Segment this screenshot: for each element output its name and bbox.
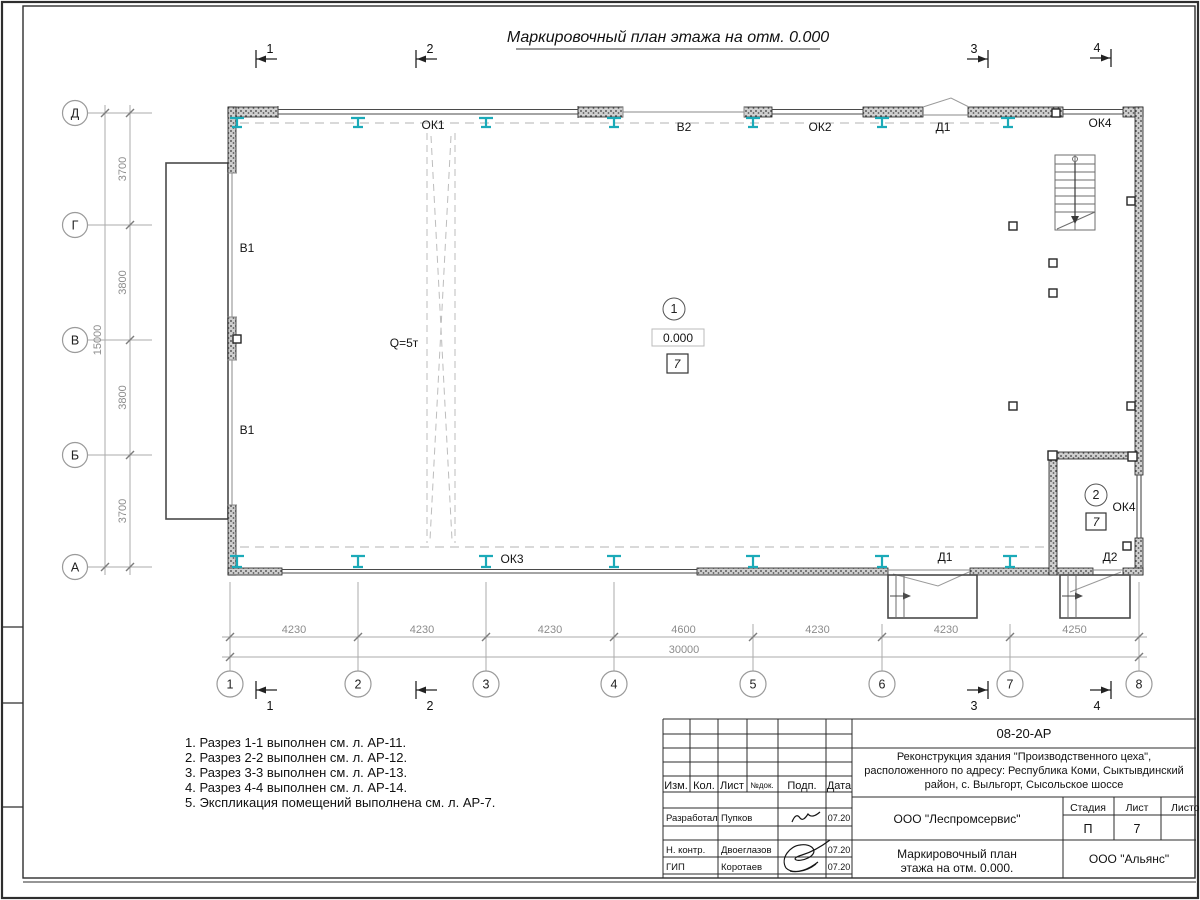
project-line-1: Реконструкция здания "Производственного … — [897, 751, 1151, 763]
col-kol: Кол. — [693, 780, 715, 792]
gate-label-v2: В2 — [677, 120, 692, 134]
note-line: 3. Разрез 3-3 выполнен см. л. АР-13. — [185, 765, 407, 780]
dim-value: 3800 — [117, 385, 129, 409]
project-line-2: расположенного по адресу: Республика Ком… — [864, 765, 1184, 777]
window-label-ok4-room: ОК4 — [1113, 500, 1136, 514]
section-label: 4 — [1094, 41, 1101, 55]
steel-columns — [230, 118, 1017, 567]
dim-value: 4230 — [410, 624, 434, 636]
steel-column-icon — [479, 556, 493, 567]
steel-column-icon — [1003, 556, 1017, 567]
pilaster-marker — [233, 335, 241, 343]
section-mark-2-top: 2 — [416, 42, 437, 68]
note-line: 4. Разрез 4-4 выполнен см. л. АР-14. — [185, 780, 407, 795]
col-ndoc: №док. — [750, 781, 773, 790]
room-2-marker: 2 ОК4 7 — [1085, 484, 1136, 530]
note-line: 5. Экспликация помещений выполнена см. л… — [185, 795, 495, 810]
svg-text:7: 7 — [1007, 678, 1014, 692]
staircase — [1055, 155, 1095, 230]
top-wall — [228, 98, 1143, 118]
crane-area: Q=5т — [240, 123, 1045, 547]
svg-text:3: 3 — [483, 678, 490, 692]
door-label-d2: Д2 — [1103, 550, 1118, 564]
section-label: 1 — [267, 42, 274, 56]
drawing-sheet: Маркировочный план этажа на отм. 0.000 1… — [0, 0, 1200, 900]
axis-circle-g: Г — [63, 213, 88, 238]
axis-circle-2: 2 — [345, 671, 371, 697]
porch-arrow-icon — [903, 593, 911, 600]
dim-total: 30000 — [669, 644, 700, 656]
column-marker — [1127, 197, 1135, 205]
signature-icon — [792, 812, 820, 822]
column-marker — [1123, 542, 1131, 550]
column-marker — [1049, 289, 1057, 297]
column-marker — [1009, 222, 1017, 230]
dim-value: 4230 — [934, 624, 958, 636]
steel-column-icon — [607, 556, 621, 567]
dim-value: 4230 — [282, 624, 306, 636]
dim-value: 4600 — [671, 624, 695, 636]
name-gip: Коротаев — [721, 862, 762, 873]
steel-column-icon — [1001, 118, 1015, 127]
section-mark-2-bottom: 2 — [416, 681, 437, 713]
col-izm: Изм. — [664, 780, 688, 792]
project-line-3: район, с. Выльгорт, Сысольское шоссе — [925, 779, 1124, 791]
steel-column-icon — [746, 556, 760, 567]
axis-circle-d: Д — [63, 101, 88, 126]
svg-text:Г: Г — [72, 219, 79, 233]
section-marks-bottom: 1 2 3 4 — [256, 681, 1111, 713]
gate-label-v1-upper: В1 — [240, 241, 255, 255]
sheet-label: Лист — [1126, 802, 1149, 814]
section-mark-3-bottom: 3 — [967, 681, 988, 713]
col-list: Лист — [720, 780, 744, 792]
name-ncontrol: Двоеглазов — [721, 845, 772, 856]
col-data: Дата — [827, 780, 852, 792]
section-mark-1-bottom: 1 — [256, 681, 277, 713]
axis-circle-3: 3 — [473, 671, 499, 697]
signature-icon — [784, 840, 830, 872]
entrance-porch-2 — [1060, 575, 1130, 618]
role-gip: ГИП — [666, 862, 685, 873]
column-marker — [1128, 452, 1137, 461]
sheet-frame — [2, 2, 1198, 898]
section-label: 3 — [971, 42, 978, 56]
svg-text:1: 1 — [227, 678, 234, 692]
dim-value: 3700 — [117, 499, 129, 523]
axis-circle-v: В — [63, 328, 88, 353]
sheet-number: 7 — [1134, 822, 1141, 836]
crane-capacity-label: Q=5т — [390, 336, 419, 350]
window-label-ok4-top: ОК4 — [1089, 116, 1112, 130]
stage-value: П — [1084, 822, 1093, 836]
room-1-marker: 1 0.000 7 — [652, 298, 704, 373]
window-label-ok2: ОК2 — [809, 120, 832, 134]
axis-circles-left: Д Г В Б А — [63, 101, 88, 580]
dim-value: 3800 — [117, 270, 129, 294]
door-label-d1-bottom: Д1 — [938, 550, 953, 564]
dim-value: 3700 — [117, 157, 129, 181]
window-label-ok1: ОК1 — [422, 118, 445, 132]
date-developer: 07.20 — [828, 813, 851, 823]
doc-number: 08-20-АР — [997, 726, 1052, 741]
axis-circle-4: 4 — [601, 671, 627, 697]
column-marker — [1127, 402, 1135, 410]
section-label: 1 — [267, 699, 274, 713]
left-wall — [227, 107, 241, 575]
dim-value: 4230 — [538, 624, 562, 636]
window-label-ok3: ОК3 — [501, 552, 524, 566]
right-wall — [1135, 107, 1143, 575]
note-line: 1. Разрез 1-1 выполнен см. л. АР-11. — [185, 735, 406, 750]
role-ncontrol: Н. контр. — [666, 845, 705, 856]
bottom-wall — [228, 568, 1143, 592]
section-label: 2 — [427, 699, 434, 713]
svg-text:5: 5 — [750, 678, 757, 692]
role-developer: Разработал — [666, 813, 718, 824]
elevation-value: 0.000 — [663, 331, 693, 345]
col-podp: Подп. — [787, 780, 816, 792]
axis-circle-5: 5 — [740, 671, 766, 697]
date-ncontrol: 07.20 — [828, 845, 851, 855]
section-label: 4 — [1094, 699, 1101, 713]
column-marker — [1009, 402, 1017, 410]
note-line: 2. Разрез 2-2 выполнен см. л. АР-12. — [185, 750, 407, 765]
dim-value: 4230 — [805, 624, 829, 636]
notes-list: 1. Разрез 1-1 выполнен см. л. АР-11. 2. … — [185, 735, 495, 810]
axis-circle-1: 1 — [217, 671, 243, 697]
room-number: 1 — [671, 302, 678, 316]
svg-text:6: 6 — [879, 678, 886, 692]
steel-column-icon — [875, 556, 889, 567]
plan-drawing-svg: Маркировочный план этажа на отм. 0.000 1… — [0, 0, 1200, 900]
svg-text:В: В — [71, 334, 79, 348]
section-label: 2 — [427, 42, 434, 56]
column-marker — [1052, 109, 1060, 117]
org-name: ООО "Леспромсервис" — [894, 812, 1021, 826]
column-marker — [1049, 259, 1057, 267]
section-label: 3 — [971, 699, 978, 713]
dim-total: 15000 — [92, 325, 104, 356]
name-developer: Пупков — [721, 813, 752, 824]
stage-label: Стадия — [1070, 802, 1106, 814]
section-mark-1-top: 1 — [256, 42, 277, 68]
section-mark-3-top: 3 — [967, 42, 988, 68]
porch-arrow-icon — [1075, 593, 1083, 600]
svg-text:Б: Б — [71, 449, 79, 463]
section-mark-4-bottom: 4 — [1090, 681, 1111, 713]
svg-text:4: 4 — [611, 678, 618, 692]
gate-label-v1-lower: В1 — [240, 423, 255, 437]
dim-value: 4250 — [1062, 624, 1086, 636]
axis-circle-6: 6 — [869, 671, 895, 697]
room-number: 2 — [1093, 488, 1100, 502]
axis-circle-7: 7 — [997, 671, 1023, 697]
axis-circle-8: 8 — [1126, 671, 1152, 697]
column-markers — [1009, 109, 1135, 550]
door-label-d1-top: Д1 — [936, 120, 951, 134]
drawing-title: Маркировочный план этажа на отм. 0.000 — [507, 29, 829, 49]
title-block: Изм. Кол. Лист №док. Подп. Дата Разработ… — [663, 719, 1200, 878]
section-mark-4-top: 4 — [1090, 41, 1111, 67]
date-gip: 07.20 — [828, 862, 851, 872]
page-title: Маркировочный план этажа на отм. 0.000 — [507, 29, 829, 46]
svg-text:Д: Д — [71, 107, 80, 121]
entrance-porch-1 — [888, 575, 977, 618]
axis-circle-a: А — [63, 555, 88, 580]
column-marker — [1048, 451, 1057, 460]
doc-title-line-1: Маркировочный план — [897, 847, 1017, 861]
svg-text:8: 8 — [1136, 678, 1143, 692]
steel-column-icon — [351, 556, 365, 567]
doc-title-line-2: этажа на отм. 0.000. — [901, 861, 1014, 875]
axis-circles-bottom: 1 2 3 4 5 6 7 8 — [217, 671, 1152, 697]
contractor-name: ООО "Альянс" — [1089, 852, 1169, 866]
svg-text:2: 2 — [355, 678, 362, 692]
annex-outline — [166, 163, 228, 519]
dimensions-bottom: 4230 4230 4230 4600 4230 4230 4250 30000 — [222, 582, 1147, 671]
dimensions-left: 3700 3800 3800 3700 15000 — [88, 105, 152, 575]
svg-text:А: А — [71, 561, 80, 575]
axis-circle-b: Б — [63, 443, 88, 468]
sheets-label: Листов — [1171, 802, 1200, 814]
